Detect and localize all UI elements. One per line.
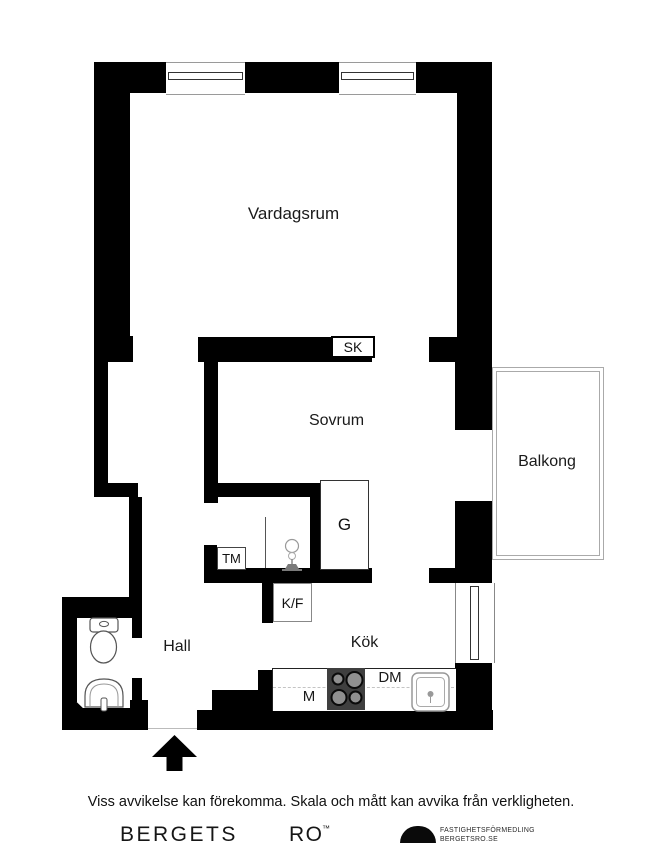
wall-left-jog: [94, 483, 138, 497]
room-label-living: Vardagsrum: [130, 204, 457, 224]
entry-arrow-icon: [150, 733, 199, 773]
wall-left-band: [94, 336, 133, 362]
wall-wc-top: [62, 597, 142, 618]
closet-g-label: G: [338, 515, 351, 535]
window-glass: [470, 586, 479, 660]
wall-bottom-step-2: [258, 670, 272, 692]
closet-sk-box: SK: [331, 336, 375, 358]
window-kitchen: [455, 583, 495, 663]
fridge-kf-label: K/F: [282, 595, 304, 611]
fixture-label-dm: DM: [370, 669, 410, 686]
room-label-balcony: Balkong: [496, 453, 598, 471]
brand-trademark: ™: [322, 824, 330, 833]
wall-left-upper: [94, 93, 130, 336]
brand-ro: RO: [289, 823, 324, 847]
wall-right-mid-upper: [455, 362, 492, 430]
closet-g-box: G: [320, 480, 369, 570]
window-glass: [341, 72, 414, 80]
wall-right-mid-lower: [455, 501, 492, 568]
washer-tm-label: TM: [222, 551, 241, 566]
washer-tm-box: TM: [217, 547, 246, 570]
wall-right-upper: [457, 93, 492, 337]
wall-wc-door-stub-top: [132, 618, 142, 638]
room-label-hall: Hall: [142, 638, 212, 656]
room-label-bedroom: Sovrum: [218, 412, 455, 430]
wall-bath-top: [204, 483, 322, 497]
agency-line2: BERGETSRO.SE: [440, 836, 535, 845]
window-top-2: [339, 62, 416, 95]
fixture-label-m: M: [295, 688, 323, 705]
wall-right-stub-band: [429, 568, 492, 583]
kitchen-sink-icon: [411, 672, 450, 712]
wall-kf-stub: [262, 583, 273, 623]
wall-bottom-step-1: [212, 690, 272, 710]
wall-top-2: [245, 62, 339, 93]
wall-wc-door-stub-bottom: [132, 678, 142, 708]
fridge-kf-box: K/F: [273, 583, 312, 622]
wall-right-band: [429, 337, 492, 362]
wall-top-1: [94, 62, 166, 93]
bath-door-line: [265, 517, 266, 568]
wall-right-lower: [455, 663, 492, 710]
window-top-1: [166, 62, 245, 95]
agency-line1: FASTIGHETSFÖRMEDLING: [440, 827, 535, 836]
wall-left-narrow: [94, 362, 108, 483]
wall-bath-stub: [204, 545, 217, 570]
shower-icon: [279, 538, 305, 574]
disclaimer-text: Viss avvikelse kan förekomma. Skala och …: [0, 794, 662, 810]
agency-text: FASTIGHETSFÖRMEDLING BERGETSRO.SE: [440, 827, 535, 844]
window-glass: [168, 72, 243, 80]
floor-plan-page: Balkong Vardagsrum Sovrum Hall Kök SK G …: [0, 0, 662, 855]
toilet-icon: [86, 616, 122, 666]
wall-bottom: [197, 710, 493, 730]
wall-wc-left: [62, 618, 77, 702]
wc-sink-icon: [82, 674, 126, 712]
entry-threshold-line: [148, 728, 197, 729]
stove-icon: [327, 668, 365, 710]
wall-top-3: [416, 62, 492, 93]
room-label-kitchen: Kök: [322, 634, 407, 652]
brand-bergets: BERGETS: [120, 823, 238, 847]
wall-bedroom-west: [204, 362, 218, 503]
closet-sk-label: SK: [344, 339, 363, 355]
dome-logo-icon: [400, 826, 436, 843]
